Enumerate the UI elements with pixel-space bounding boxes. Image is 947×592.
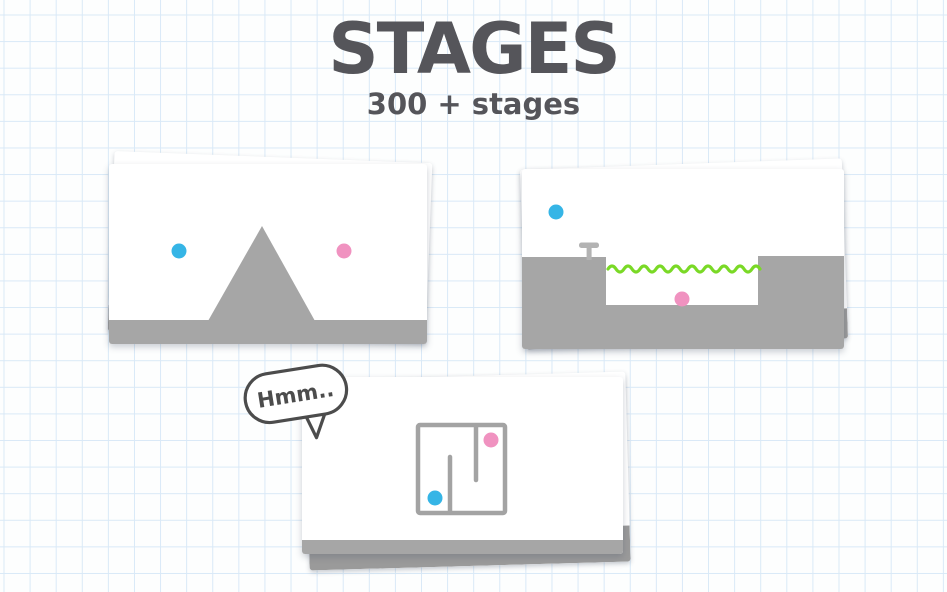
mountain-stage-art (109, 164, 427, 344)
pink-ball-icon (675, 292, 690, 307)
water-wave-line (608, 266, 760, 272)
blue-ball-icon (172, 244, 187, 259)
stage-card-water-pit-front (522, 169, 844, 349)
right-platform (758, 256, 844, 307)
pink-ball-icon (337, 244, 352, 259)
page-title: STAGES (0, 14, 947, 84)
header: STAGES 300 + stages (0, 0, 947, 121)
blue-ball-icon (428, 491, 443, 506)
stage-card-mountain-front (109, 164, 427, 344)
blue-ball-icon (549, 205, 564, 220)
stage-card-water-pit (522, 169, 844, 349)
stages-promo-screen: STAGES 300 + stages (0, 0, 947, 592)
pin-stem (587, 247, 592, 260)
water-pit-stage-art (522, 169, 844, 349)
page-subtitle: 300 + stages (0, 87, 947, 121)
mountain-triangle (208, 226, 315, 321)
pink-ball-icon (484, 433, 499, 448)
floor (302, 540, 623, 554)
pin-bar-icon (579, 243, 599, 249)
stage-card-mountain (109, 164, 427, 344)
left-platform (522, 257, 606, 307)
bottom-slab (522, 305, 844, 349)
floor (109, 320, 427, 344)
